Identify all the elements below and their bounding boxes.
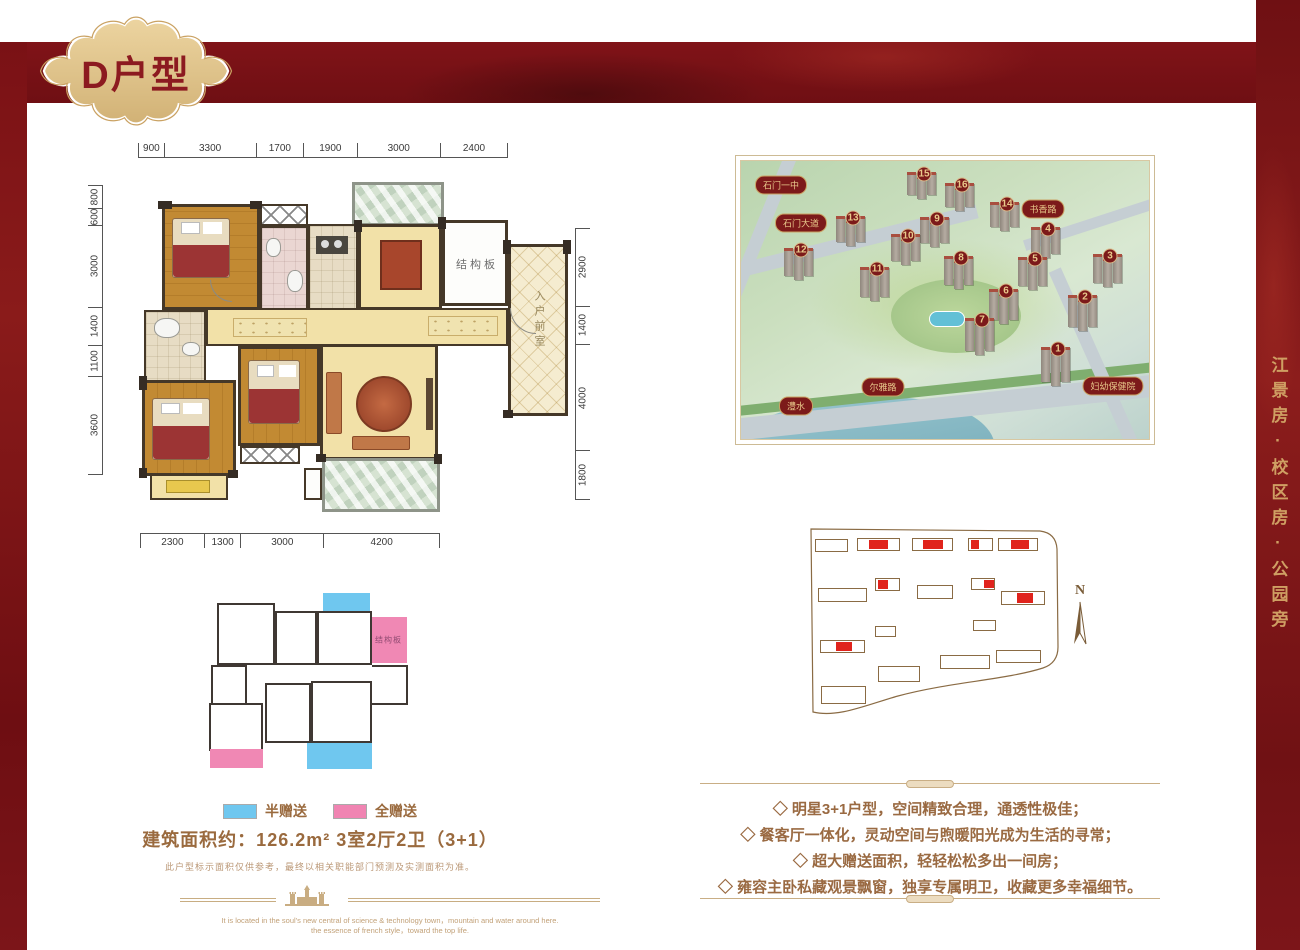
dimension-value: 2900 bbox=[578, 256, 589, 278]
building-tower bbox=[1018, 257, 1027, 286]
dimension-segment: 4200 bbox=[324, 534, 440, 548]
dimension-value: 1300 bbox=[205, 537, 241, 548]
siteplan-highlight-red bbox=[836, 642, 852, 651]
dimension-segment: 800 bbox=[88, 185, 102, 209]
features-divider-bottom bbox=[700, 898, 1160, 899]
building-number-badge: 15 bbox=[917, 167, 932, 182]
legend-half-label: 半赠送 bbox=[265, 801, 307, 821]
mini-master-bedroom bbox=[209, 703, 263, 751]
tv-cabinet bbox=[426, 378, 433, 430]
dimension-value: 1400 bbox=[90, 315, 101, 337]
siteplan-boundary-icon bbox=[800, 525, 1100, 745]
stove bbox=[316, 236, 348, 254]
footer-english: It is located in the soul's new central … bbox=[180, 916, 600, 936]
window-bench bbox=[166, 480, 210, 493]
building-number-badge: 7 bbox=[975, 313, 990, 328]
siteplan-building bbox=[818, 588, 867, 602]
siteplan-building bbox=[998, 538, 1038, 551]
building-tower bbox=[990, 202, 999, 227]
badge-title: D户型 bbox=[36, 8, 236, 134]
siteplan-building bbox=[821, 686, 866, 704]
legend-full-swatch bbox=[333, 804, 367, 819]
siteplan-highlight-red bbox=[1017, 593, 1033, 603]
building-number-badge: 10 bbox=[901, 229, 916, 244]
dimension-segment: 2400 bbox=[441, 143, 508, 157]
half-gift-balcony-bottom bbox=[307, 743, 372, 769]
siteplan-sketch: N bbox=[800, 525, 1100, 745]
dimension-segment: 1700 bbox=[257, 143, 305, 157]
sofa-bottom bbox=[352, 436, 410, 450]
building-tower bbox=[784, 248, 793, 276]
swimming-pool bbox=[929, 311, 965, 327]
map-label: 石门一中 bbox=[755, 176, 807, 195]
dimension-value: 900 bbox=[139, 143, 164, 154]
living-rug bbox=[356, 376, 412, 432]
map-label: 石门大道 bbox=[775, 214, 827, 233]
siteplan-highlight-red bbox=[971, 540, 979, 549]
bathtub bbox=[154, 318, 180, 338]
mini-floorplan: 结构板 bbox=[195, 585, 440, 785]
dimension-value: 1900 bbox=[304, 143, 356, 154]
left-border-strip bbox=[0, 42, 27, 950]
features-divider-top bbox=[700, 783, 1160, 784]
bed-master bbox=[152, 398, 210, 460]
siteplan-highlight-red bbox=[878, 580, 888, 589]
building-tower bbox=[836, 216, 845, 242]
mini-foyer bbox=[372, 665, 408, 705]
siteplan-highlight-red bbox=[923, 540, 943, 549]
aerial-rendering: 15161413941012385116271石门一中石门大道书香路妇幼保健院尔… bbox=[735, 155, 1155, 445]
dimension-segment: 3000 bbox=[88, 226, 102, 308]
dimension-segment: 1300 bbox=[205, 534, 242, 548]
building-number-badge: 9 bbox=[930, 212, 945, 227]
legend-item-full: 全赠送 bbox=[333, 801, 417, 821]
dimension-value: 3000 bbox=[241, 537, 323, 548]
feature-line: ◇ 明星3+1户型，空间精致合理，通透性极佳； bbox=[700, 797, 1160, 823]
footer-line-left bbox=[180, 898, 276, 902]
mini-dining bbox=[317, 611, 372, 665]
building-number-badge: 2 bbox=[1078, 290, 1093, 305]
north-compass: N bbox=[1068, 583, 1092, 652]
siteplan-highlight-red bbox=[984, 580, 994, 588]
siteplan-building bbox=[971, 578, 995, 590]
area-summary: 建筑面积约：126.2m² 3室2厅2卫（3+1） bbox=[110, 826, 530, 852]
disclaimer-text: 此户型标示面积仅供参考，最终以相关职能部门预测及实测面积为准。 bbox=[130, 860, 510, 873]
dimension-segment: 1100 bbox=[88, 346, 102, 377]
dimension-segment: 3000 bbox=[241, 534, 324, 548]
siteplan-building bbox=[973, 620, 996, 631]
building-number-badge: 11 bbox=[870, 262, 885, 277]
map-label: 妇幼保健院 bbox=[1082, 377, 1143, 396]
sofa-left bbox=[326, 372, 342, 434]
dimension-col-left: 8006003000140011003600 bbox=[88, 185, 103, 475]
dimension-segment: 1400 bbox=[88, 308, 102, 347]
bed-1 bbox=[172, 218, 230, 278]
hall-rug-2 bbox=[428, 316, 498, 336]
dimension-value: 2300 bbox=[141, 537, 204, 548]
dimension-segment: 3300 bbox=[165, 143, 257, 157]
shaft bbox=[304, 468, 322, 500]
footer-english-line1: It is located in the soul's new central … bbox=[180, 916, 600, 926]
building-number-badge: 1 bbox=[1051, 342, 1066, 357]
building-tower bbox=[907, 172, 916, 195]
building-tower bbox=[860, 267, 869, 297]
side-banner-text: 江景房·校区房·公园旁 bbox=[1266, 356, 1291, 635]
building-tower bbox=[1031, 227, 1040, 254]
siteplan-highlight-red bbox=[869, 540, 888, 549]
footer-line-right bbox=[348, 898, 600, 902]
balcony-top bbox=[352, 182, 444, 226]
dimension-segment: 3600 bbox=[88, 377, 102, 475]
basin-1 bbox=[287, 270, 303, 292]
building-tower bbox=[920, 217, 929, 243]
siteplan-building bbox=[940, 655, 990, 669]
feature-line: ◇ 餐客厅一体化，灵动空间与煦暖阳光成为生活的寻常； bbox=[700, 823, 1160, 849]
building-tower bbox=[891, 234, 900, 261]
dimension-value: 1100 bbox=[90, 350, 101, 372]
map-label: 书香路 bbox=[1021, 200, 1064, 219]
legend-item-half: 半赠送 bbox=[223, 801, 307, 821]
dimension-value: 4200 bbox=[324, 537, 439, 548]
feature-line: ◇ 超大赠送面积，轻轻松松多出一间房； bbox=[700, 849, 1160, 875]
dimension-row-bottom: 2300130030004200 bbox=[140, 533, 440, 548]
bathroom-1 bbox=[260, 226, 308, 310]
chateau-icon bbox=[284, 884, 330, 910]
legend-half-swatch bbox=[223, 804, 257, 819]
mini-master-bath bbox=[211, 665, 247, 705]
mini-living bbox=[311, 681, 372, 743]
dimension-segment: 1800 bbox=[576, 451, 590, 500]
dimension-segment: 4000 bbox=[576, 345, 590, 452]
mini-bedroom-1 bbox=[217, 603, 275, 665]
dimension-value: 1400 bbox=[578, 314, 589, 336]
dimension-value: 3600 bbox=[90, 414, 101, 436]
mini-bath-kitchen bbox=[275, 611, 317, 665]
building-number-badge: 6 bbox=[999, 284, 1014, 299]
siteplan-building bbox=[996, 650, 1041, 663]
siteplan-building bbox=[1001, 591, 1045, 605]
building-number-badge: 5 bbox=[1028, 252, 1043, 267]
legend: 半赠送 全赠送 bbox=[170, 801, 470, 821]
closet-bottom bbox=[240, 446, 300, 464]
footer-ornament: It is located in the soul's new central … bbox=[180, 890, 600, 940]
siteplan-building bbox=[878, 666, 920, 682]
dimension-segment: 900 bbox=[138, 143, 165, 157]
map-label: 尔雅路 bbox=[861, 378, 904, 397]
dimension-value: 1800 bbox=[578, 464, 589, 486]
dimension-segment: 1400 bbox=[576, 307, 590, 345]
legend-full-label: 全赠送 bbox=[375, 801, 417, 821]
dimension-segment: 3000 bbox=[358, 143, 442, 157]
hall-rug bbox=[233, 318, 307, 337]
siteplan-building bbox=[968, 538, 993, 551]
dimension-segment: 600 bbox=[88, 209, 102, 226]
siteplan-building bbox=[875, 578, 900, 591]
divider-capsule-icon bbox=[906, 895, 954, 903]
toilet-master bbox=[182, 342, 200, 356]
building-number-badge: 4 bbox=[1041, 222, 1056, 237]
full-gift-slab: 结构板 bbox=[370, 617, 407, 663]
north-arrow-icon bbox=[1072, 599, 1088, 647]
map-label: 澧水 bbox=[779, 397, 813, 416]
building-tower bbox=[1093, 254, 1102, 283]
building-number-badge: 13 bbox=[846, 211, 861, 226]
dimension-value: 3300 bbox=[165, 143, 256, 154]
siteplan-building bbox=[912, 538, 953, 551]
dimension-row-top: 90033001700190030002400 bbox=[138, 143, 508, 158]
siteplan-building bbox=[917, 585, 953, 599]
siteplan-building bbox=[875, 626, 896, 637]
building-tower bbox=[944, 256, 953, 285]
structural-slab-label: 结构板 bbox=[456, 256, 498, 272]
dimension-value: 3000 bbox=[90, 255, 101, 277]
dining-table bbox=[380, 240, 422, 290]
mini-slab-label: 结构板 bbox=[375, 635, 402, 646]
building-tower bbox=[989, 289, 998, 320]
building-number-badge: 8 bbox=[954, 251, 969, 266]
dimension-value: 1700 bbox=[257, 143, 304, 154]
dimension-col-right: 2900140040001800 bbox=[575, 228, 590, 500]
full-gift-bay bbox=[210, 749, 263, 768]
building-tower bbox=[1068, 295, 1077, 327]
dimension-segment: 2300 bbox=[140, 534, 205, 548]
building-number-badge: 14 bbox=[1000, 197, 1015, 212]
building-tower bbox=[1041, 347, 1050, 382]
divider-capsule-icon bbox=[906, 780, 954, 788]
building-number-badge: 16 bbox=[955, 178, 970, 193]
feature-list: ◇ 明星3+1户型，空间精致合理，通透性极佳；◇ 餐客厅一体化，灵动空间与煦暖阳… bbox=[700, 797, 1160, 901]
dimension-value: 800 bbox=[90, 188, 101, 205]
building-number-badge: 3 bbox=[1103, 249, 1118, 264]
mini-bedroom-2 bbox=[265, 683, 311, 743]
building-tower bbox=[945, 183, 954, 207]
right-border-strip: 江景房·校区房·公园旁 bbox=[1256, 0, 1300, 950]
building-number-badge: 12 bbox=[794, 243, 809, 258]
aerial-scene: 15161413941012385116271石门一中石门大道书香路妇幼保健院尔… bbox=[740, 160, 1150, 440]
dimension-value: 3000 bbox=[358, 143, 441, 154]
siteplan-highlight-red bbox=[1011, 540, 1029, 549]
dimension-segment: 2900 bbox=[576, 228, 590, 307]
siteplan-building bbox=[815, 539, 848, 552]
siteplan-building bbox=[820, 640, 865, 653]
footer-english-line2: the essence of french style，toward the t… bbox=[180, 926, 600, 936]
bed-2 bbox=[248, 360, 300, 424]
dimension-value: 600 bbox=[90, 208, 101, 225]
dimension-segment: 1900 bbox=[304, 143, 357, 157]
toilet-1 bbox=[266, 238, 281, 257]
north-label: N bbox=[1068, 583, 1092, 599]
unit-type-badge: D户型 bbox=[36, 8, 236, 134]
main-floorplan: 90033001700190030002400 8006003000140011… bbox=[60, 140, 640, 570]
siteplan-building bbox=[857, 538, 900, 551]
closet-top bbox=[260, 204, 308, 226]
dimension-value: 4000 bbox=[578, 386, 589, 408]
dimension-value: 2400 bbox=[441, 143, 507, 154]
balcony-bottom bbox=[322, 458, 440, 512]
building-tower bbox=[965, 318, 974, 351]
brochure-page: 江景房·校区房·公园旁 D户型 90033001700190030002400 … bbox=[0, 0, 1300, 950]
